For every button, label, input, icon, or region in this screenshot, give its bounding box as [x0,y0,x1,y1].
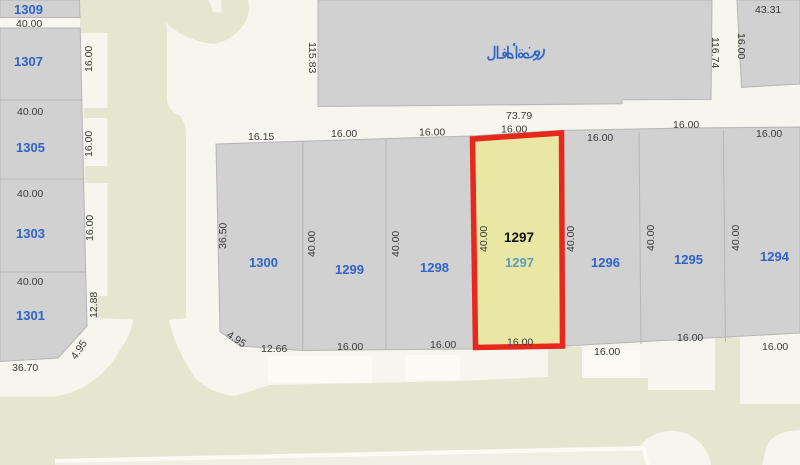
svg-text:73.79: 73.79 [506,110,532,122]
svg-text:1294: 1294 [760,249,790,264]
svg-text:16.00: 16.00 [337,341,363,353]
svg-text:1300: 1300 [249,255,278,270]
svg-text:12.88: 12.88 [88,292,100,318]
svg-text:43.31: 43.31 [755,4,781,16]
svg-text:1295: 1295 [674,252,703,267]
svg-text:16.00: 16.00 [756,128,782,140]
svg-text:36.70: 36.70 [12,362,38,374]
svg-text:1296: 1296 [591,255,620,270]
svg-text:40.00: 40.00 [17,276,43,288]
svg-text:36.50: 36.50 [217,222,229,249]
svg-text:16.00: 16.00 [735,33,747,59]
svg-text:1309: 1309 [14,2,43,17]
svg-text:16.00: 16.00 [419,127,445,139]
svg-text:40.00: 40.00 [730,225,742,251]
svg-text:1301: 1301 [16,308,45,323]
svg-text:116.74: 116.74 [709,37,721,68]
svg-text:12.66: 12.66 [261,343,287,355]
svg-text:1303: 1303 [16,226,45,241]
svg-text:1298: 1298 [420,260,449,275]
svg-text:40.00: 40.00 [565,226,577,252]
svg-text:16.00: 16.00 [673,119,699,131]
svg-text:1305: 1305 [16,140,45,155]
svg-text:16.00: 16.00 [501,124,527,136]
svg-text:1307: 1307 [14,54,43,69]
svg-text:1297: 1297 [505,255,534,270]
svg-text:16.00: 16.00 [83,131,95,157]
svg-text:40.00: 40.00 [645,225,657,251]
svg-text:16.00: 16.00 [83,46,95,72]
svg-text:16.15: 16.15 [248,131,274,143]
svg-text:16.00: 16.00 [677,332,703,344]
svg-text:16.00: 16.00 [84,215,96,241]
svg-text:16.00: 16.00 [594,346,620,358]
svg-text:16.00: 16.00 [331,128,357,140]
svg-text:1299: 1299 [335,262,364,277]
svg-text:16.00: 16.00 [587,132,613,144]
svg-text:40.00: 40.00 [16,18,42,30]
svg-text:40.00: 40.00 [478,226,490,252]
svg-text:115.83: 115.83 [306,42,318,73]
svg-text:40.00: 40.00 [390,231,402,257]
svg-text:40.00: 40.00 [17,106,43,118]
svg-text:40.00: 40.00 [306,231,318,257]
svg-text:16.00: 16.00 [507,337,533,349]
svg-text:1297: 1297 [504,230,534,245]
svg-text:16.00: 16.00 [430,339,456,351]
svg-text:40.00: 40.00 [17,188,43,200]
svg-text:16.00: 16.00 [762,341,788,353]
